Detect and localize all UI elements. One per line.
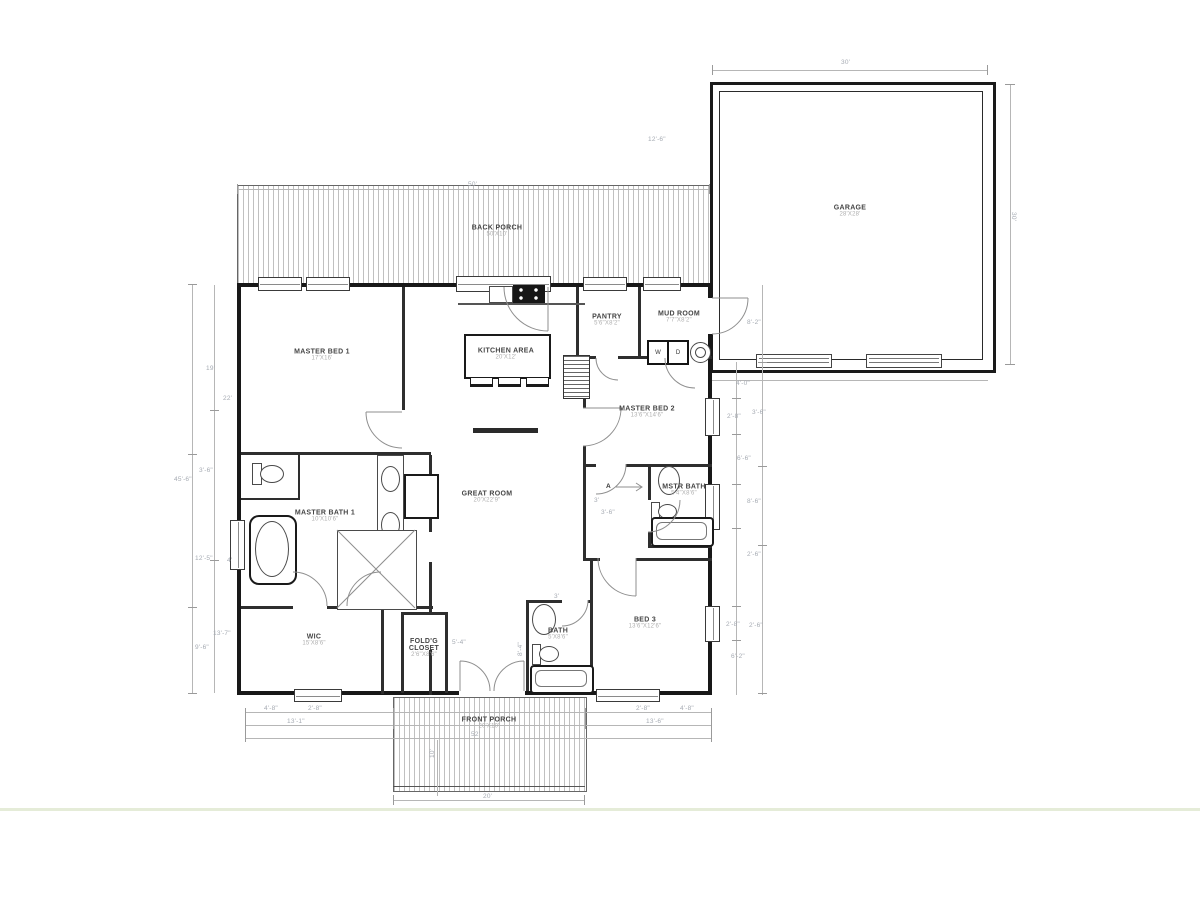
wall-mb1-east [402, 287, 405, 410]
room-label-kitchen: KITCHEN AREA 20'X12' [478, 348, 534, 361]
wall-mb2-south-1 [583, 464, 596, 467]
window-north-1 [258, 277, 302, 291]
mb1-toilet-bowl [260, 465, 284, 483]
room-label-foldg-closet: FOLD'G CLOSET 2'6"X8'6" [403, 638, 445, 658]
room-name: GARAGE [834, 205, 867, 212]
room-name: MSTR BATH [662, 484, 705, 491]
garage-door-1 [756, 354, 832, 368]
washer-label: W [655, 350, 661, 356]
room-name: BATH [548, 628, 568, 635]
room-name: BACK PORCH [472, 225, 522, 232]
front-porch-edge-line [393, 786, 585, 787]
wall-wic-east [381, 609, 384, 694]
room-size: 10'X10'6" [295, 517, 355, 523]
dim-label: 20' [483, 794, 492, 801]
kitchen-counter-edge [458, 303, 585, 305]
room-size: 5'4"X8'6" [662, 491, 705, 497]
wall-toilet-room-south [241, 498, 300, 500]
bath2-tub-inner [656, 522, 707, 540]
wall-pantry-east [638, 287, 641, 359]
wall-pantry-south-2 [618, 356, 641, 359]
room-name: MASTER BED 1 [294, 349, 350, 356]
freestanding-tub-inner [255, 521, 289, 577]
door-swing-overlay [0, 0, 1200, 903]
room-name: MUD ROOM [658, 311, 700, 318]
room-name: BED 3 [629, 617, 662, 624]
wall-wic-north-1 [241, 606, 293, 609]
refrigerator [563, 355, 590, 399]
room-name: PANTRY [592, 314, 622, 321]
dim-label: 30' [1010, 212, 1017, 221]
dim-label: 8'-4" [518, 642, 525, 656]
room-label-wic: WIC 15'X8'6" [302, 634, 325, 647]
dim-label: 50' [468, 182, 477, 189]
door-arc-mb2 [583, 408, 621, 446]
dim-label: 3' [554, 594, 559, 601]
wall-toilet-room-east [298, 455, 300, 500]
dim-label: 3'-6" [199, 468, 213, 475]
utility-sink-drain [695, 347, 706, 358]
room-name: MASTER BATH 1 [295, 510, 355, 517]
room-name: FRONT PORCH [462, 717, 517, 724]
dim-label: 13'-7" [213, 631, 231, 638]
room-size: 13'6"X14'6" [619, 413, 675, 419]
door-arc-bath [562, 600, 588, 626]
dim-label: 5'-4" [452, 640, 466, 647]
door-arc-front-left [460, 661, 490, 691]
room-size: 50'X10' [472, 232, 522, 238]
room-label-master-bed-1: MASTER BED 1 17'X16' [294, 349, 350, 362]
dim-label: 12'-6" [648, 137, 666, 144]
dim-line-right-outer [762, 285, 763, 695]
dim-label: 30' [841, 60, 850, 67]
room-label-bath: BATH 5'X8'6" [548, 628, 568, 641]
dim-line-garage-right [1010, 84, 1011, 365]
room-size: 2'6"X8'6" [403, 652, 445, 658]
dim-label: 6'-6" [737, 456, 751, 463]
exterior-wall-west [237, 283, 241, 695]
dim-label: 2'-6" [747, 552, 761, 559]
dim-label: 52' [471, 732, 480, 739]
room-label-pantry: PANTRY 5'6"X8'2" [592, 314, 622, 327]
floor-plan-sheet: W D [0, 0, 1200, 903]
garage-door-2 [866, 354, 942, 368]
room-label-master-bath-2: MSTR BATH 5'4"X8'6" [662, 484, 705, 497]
bar-stool-2 [498, 377, 521, 387]
attic-marker: A [606, 483, 611, 490]
dim-label: 6'-2" [731, 654, 745, 661]
window-east-3 [705, 606, 720, 642]
dim-label: 3'-6" [601, 510, 615, 517]
dim-label: 4'-8" [680, 706, 694, 713]
bath-toilet-bowl [539, 646, 559, 662]
kitchen-sink [489, 286, 513, 303]
room-name: WIC [302, 634, 325, 641]
door-arc-hall [596, 464, 626, 494]
window-north-3 [583, 277, 627, 291]
room-label-back-porch: BACK PORCH 50'X10' [472, 225, 522, 238]
dim-label: 12'-5" [195, 556, 213, 563]
room-size: 28'X28' [834, 212, 867, 218]
bar-stool-3 [526, 377, 549, 387]
window-east-1 [705, 398, 720, 436]
dim-label: 19' [206, 366, 215, 373]
door-arc-pantry [596, 358, 618, 380]
room-name: MASTER BED 2 [619, 406, 675, 413]
dim-line-deck-depth [437, 740, 438, 796]
dim-line-left-outer [192, 285, 193, 693]
room-label-great-room: GREAT ROOM 20'X22'9" [462, 491, 513, 504]
range-stove [513, 285, 545, 303]
room-label-garage: GARAGE 28'X28' [834, 205, 867, 218]
window-north-2 [306, 277, 350, 291]
room-label-mud-room: MUD ROOM 7'7"X8'2" [658, 311, 700, 324]
dim-label: 10' [430, 749, 437, 758]
dim-label: 22' [223, 396, 232, 403]
dim-label: 13'-6" [646, 719, 664, 726]
wall-greatroom-west-2 [429, 562, 432, 612]
dim-label: 4'-8" [264, 706, 278, 713]
wall-bath2-west-1 [648, 467, 651, 500]
room-size: 20'X22'9" [462, 498, 513, 504]
room-label-front-porch: FRONT PORCH 20'X10' [462, 717, 517, 730]
wall-bath-north-2 [588, 600, 592, 603]
wall-bath-west [526, 600, 529, 691]
dim-label: 4'-0" [736, 381, 750, 388]
dim-label: 2'-8" [308, 706, 322, 713]
window-south-2 [596, 689, 660, 702]
shower [337, 530, 417, 610]
mb1-linen-cabinet [404, 474, 439, 519]
room-size: 7'7"X8'2" [658, 318, 700, 324]
wall-bed3-north-2 [636, 558, 712, 561]
dim-label: 9'-6" [195, 645, 209, 652]
dim-label: 8'-6" [747, 499, 761, 506]
wall-closet-north [401, 612, 448, 615]
room-size: 17'X16' [294, 356, 350, 362]
dim-label: 2'-8" [727, 414, 741, 421]
room-size: 5'X8'6" [548, 635, 568, 641]
wall-mb2-south-2 [626, 464, 650, 467]
dryer-label: D [676, 350, 680, 356]
wall-closet-east [445, 612, 448, 693]
door-arc-wic-1 [293, 572, 327, 606]
room-label-master-bed-2: MASTER BED 2 13'6"X14'6" [619, 406, 675, 419]
dim-label: 13'-1" [287, 719, 305, 726]
media-console [473, 428, 538, 433]
room-size: 20'X12' [478, 355, 534, 361]
dim-label: 4' [227, 558, 232, 565]
bath-tub-inner [535, 670, 587, 687]
mb1-sink-1 [381, 466, 400, 492]
room-size: 5'6"X8'2" [592, 321, 622, 327]
door-arc-front-right [494, 661, 524, 691]
door-arc-bed3 [598, 558, 636, 596]
dryer: D [667, 340, 689, 365]
room-label-master-bath-1: MASTER BATH 1 10'X10'6" [295, 510, 355, 523]
attic-access-arrow [616, 483, 642, 491]
front-door-opening [459, 690, 525, 696]
dim-label: 45'-6" [174, 477, 192, 484]
wall-pantry-west [576, 287, 579, 359]
dim-label: 2'-6" [749, 623, 763, 630]
dim-label: 3' [594, 498, 599, 505]
wall-bath2-north [648, 464, 712, 467]
dim-line-garage-top [712, 70, 988, 71]
dim-line-garage-bottom [712, 380, 988, 381]
mudroom-door-opening [708, 298, 714, 334]
dim-label: 2'-8" [726, 622, 740, 629]
dim-label: 2'-8" [636, 706, 650, 713]
bar-stool-1 [470, 377, 493, 387]
washer: W [647, 340, 669, 365]
dim-label: 3'-6" [752, 410, 766, 417]
dim-line-porch-top [237, 189, 710, 190]
room-label-bed-3: BED 3 13'6"X12'6" [629, 617, 662, 630]
room-name: FOLD'G CLOSET [403, 638, 445, 652]
dim-label: 8'-2" [747, 320, 761, 327]
room-name: KITCHEN AREA [478, 348, 534, 355]
window-south-1 [294, 689, 342, 702]
room-name: GREAT ROOM [462, 491, 513, 498]
room-size: 13'6"X12'6" [629, 624, 662, 630]
window-north-4 [643, 277, 681, 291]
room-size: 15'X8'6" [302, 641, 325, 647]
ground-line [0, 808, 1200, 811]
door-arc-mb1 [366, 412, 402, 448]
room-size: 20'X10' [462, 724, 517, 730]
